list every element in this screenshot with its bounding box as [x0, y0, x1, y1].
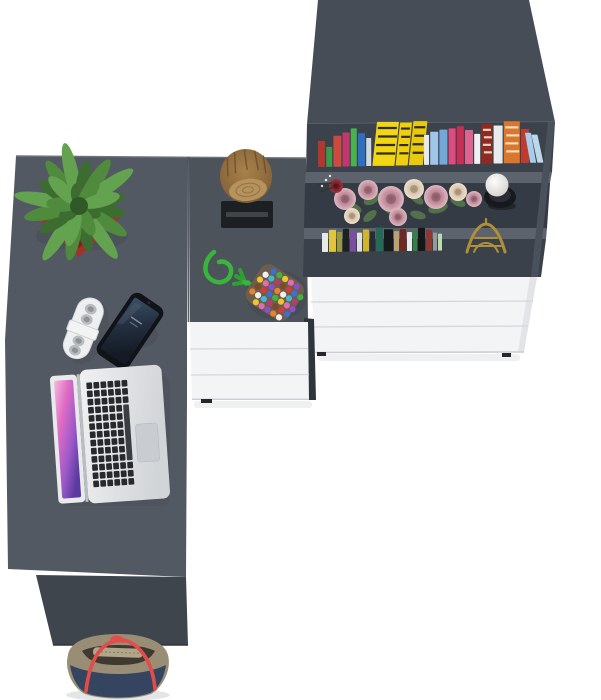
book-spine — [372, 122, 399, 166]
laptop-key — [110, 414, 116, 421]
laptop-key — [87, 399, 93, 406]
laptop-key — [103, 422, 109, 429]
laptop-key — [127, 462, 133, 469]
book-spine — [394, 231, 399, 251]
laptop-key — [121, 478, 127, 485]
book-spine-text — [484, 151, 492, 153]
book-spine-text — [376, 144, 395, 146]
laptop-key — [107, 471, 113, 478]
laptop-key — [92, 464, 98, 471]
book-spine-text — [506, 134, 519, 136]
book-spine-text — [378, 127, 397, 129]
book-spine-text — [414, 135, 425, 137]
laptop-key — [94, 398, 100, 405]
laptop-key — [108, 389, 114, 396]
laptop-trackpad — [135, 423, 160, 462]
laptop-key — [105, 455, 111, 462]
book-spine — [413, 230, 417, 251]
book-spine — [318, 141, 325, 167]
laptop-key — [90, 440, 96, 447]
laptop-key — [123, 396, 129, 403]
rose-center — [333, 183, 339, 189]
laptop-key — [86, 382, 92, 389]
book-spine — [337, 232, 342, 252]
book-spine-text — [483, 129, 491, 131]
laptop-key — [111, 438, 117, 445]
book-spine — [333, 136, 341, 167]
book-spine — [376, 227, 383, 251]
laptop-key — [114, 479, 120, 486]
laptop-key — [103, 414, 109, 421]
laptop-key — [108, 397, 114, 404]
laptop-key — [95, 406, 101, 413]
laptop-key — [111, 430, 117, 437]
laptop-key — [119, 446, 125, 453]
book-spine — [426, 230, 432, 251]
laptop-key — [120, 462, 126, 469]
laptop-key — [101, 389, 107, 396]
book-spine-text — [376, 152, 395, 154]
book-spine-text — [484, 136, 492, 138]
book-spine — [418, 228, 425, 251]
book-spine-text — [414, 126, 425, 128]
laptop-key — [128, 470, 134, 477]
laptop-key — [93, 480, 99, 487]
rose-center — [349, 213, 355, 219]
book-spine — [430, 132, 438, 165]
laptop-key — [89, 423, 95, 430]
book-spine — [481, 124, 492, 164]
laptop-key — [115, 397, 121, 404]
stump-mat-band — [226, 212, 268, 217]
babys-breath — [325, 179, 328, 182]
book-spine-text — [378, 135, 397, 137]
laptop-key — [96, 414, 102, 421]
laptop-key — [122, 388, 128, 395]
candle-ball — [486, 174, 509, 197]
laptop-key — [105, 447, 111, 454]
book-spine-text — [401, 136, 410, 138]
laptop-key — [114, 380, 120, 387]
laptop-key — [112, 454, 118, 461]
laptop-key — [118, 429, 124, 436]
laptop-key — [117, 421, 123, 428]
rose-center — [386, 194, 396, 204]
laptop-key — [89, 415, 95, 422]
plant-core — [70, 197, 88, 215]
laptop-key — [91, 448, 97, 455]
bookcase-foot-left — [317, 352, 326, 356]
laptop-key — [100, 480, 106, 487]
book-spine-text — [505, 142, 518, 144]
return-drawer-seam-2 — [191, 375, 309, 376]
book-spine — [424, 135, 429, 165]
laptop-key — [104, 430, 110, 437]
laptop-key — [113, 463, 119, 470]
laptop-key — [94, 390, 100, 397]
book-spine-text — [506, 150, 519, 152]
book-spine — [384, 229, 393, 251]
rose-center — [454, 188, 461, 195]
laptop-key — [93, 472, 99, 479]
book-spine — [457, 126, 464, 164]
book-spine-text — [483, 144, 491, 146]
book-spine — [357, 233, 362, 252]
book-spine — [438, 234, 442, 251]
book-spine — [350, 231, 356, 252]
laptop-key — [98, 455, 104, 462]
laptop-key — [100, 472, 106, 479]
laptop-key — [112, 446, 118, 453]
book-spine — [343, 133, 350, 167]
drawer-floor-shadow — [318, 354, 520, 361]
laptop-key — [121, 380, 127, 387]
laptop-key — [97, 439, 103, 446]
laptop-key — [90, 431, 96, 438]
laptop — [49, 364, 170, 505]
laptop-key — [110, 422, 116, 429]
scene-canvas — [0, 0, 601, 700]
laptop-key — [114, 471, 120, 478]
rose-center — [410, 185, 418, 193]
book-spine-text — [412, 143, 423, 145]
laptop-key — [107, 381, 113, 388]
book-spine — [439, 130, 447, 165]
book-spine — [366, 138, 371, 166]
laptop-key — [97, 431, 103, 438]
rose-center — [431, 192, 441, 202]
laptop-key — [117, 413, 123, 420]
bookcase-drawers — [311, 277, 537, 353]
laptop-key — [107, 479, 113, 486]
book-spine — [494, 125, 503, 163]
babys-breath — [321, 185, 323, 187]
laptop-key — [121, 470, 127, 477]
bookcase-drawer-bottom-edge — [315, 352, 524, 353]
laptop-key — [119, 454, 125, 461]
rose-center — [394, 213, 401, 220]
book-spine — [449, 128, 456, 164]
laptop-key — [87, 390, 93, 397]
return-drawer-foot — [201, 399, 212, 403]
bookcase-top-panel — [307, 0, 555, 124]
book-spine — [351, 128, 357, 166]
rose-center — [341, 195, 350, 204]
babys-breath — [329, 175, 331, 177]
bookcase-shelf1-edge — [305, 172, 552, 183]
laptop-key — [99, 464, 105, 471]
product-photo-desk-scene — [0, 0, 601, 700]
laptop-key — [101, 398, 107, 405]
book-spine — [329, 230, 336, 252]
laptop-key — [96, 423, 102, 430]
laptop-key — [88, 407, 94, 414]
return-drawers — [190, 322, 309, 400]
rose-center — [364, 186, 372, 194]
book-spine-text — [505, 126, 518, 128]
book-spine — [358, 133, 365, 166]
rose-center — [471, 196, 477, 202]
laptop-key — [106, 463, 112, 470]
laptop-key — [102, 406, 108, 413]
handbag — [67, 634, 169, 699]
book-spine — [326, 147, 332, 167]
return-drawer-seam-1 — [190, 349, 308, 350]
book-spine — [504, 121, 520, 163]
book-spine — [322, 233, 328, 252]
laptop-key — [116, 405, 122, 412]
book-spine-text — [401, 127, 410, 129]
book-spine-text — [399, 152, 408, 154]
laptop-key — [93, 382, 99, 389]
bookcase-foot-right — [502, 353, 511, 357]
laptop-key — [104, 439, 110, 446]
laptop-key — [118, 438, 124, 445]
book-spine — [370, 231, 375, 251]
laptop-key — [98, 447, 104, 454]
laptop-key — [115, 388, 121, 395]
laptop-key — [109, 405, 115, 412]
book-spine — [433, 233, 437, 251]
book-spine-text — [412, 152, 423, 154]
book-spine — [465, 130, 473, 164]
laptop-key — [100, 381, 106, 388]
book-spine — [407, 232, 412, 251]
book-spine — [363, 230, 369, 252]
laptop-key — [91, 456, 97, 463]
book-spine — [474, 134, 480, 164]
book-spine — [400, 229, 406, 251]
laptop-key — [128, 478, 134, 485]
book-spine-text — [399, 144, 408, 146]
book-spine — [343, 229, 349, 252]
